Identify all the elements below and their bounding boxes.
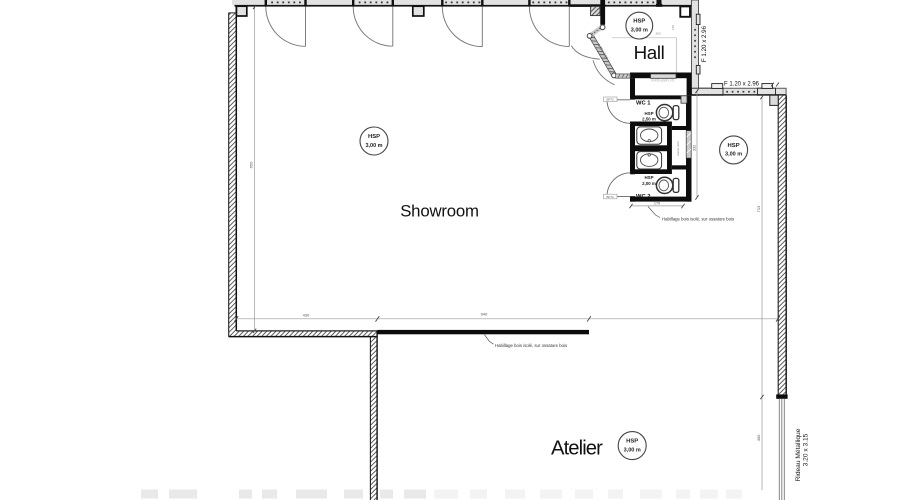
svg-text:HSP: HSP: [368, 134, 380, 140]
svg-text:F 1.20 x 2.96: F 1.20 x 2.96: [724, 81, 760, 87]
svg-text:940: 940: [481, 311, 488, 316]
svg-text:3,00 m: 3,00 m: [365, 143, 382, 149]
svg-text:Rideau Métallique: Rideau Métallique: [795, 428, 802, 481]
svg-text:400: 400: [756, 434, 761, 441]
svg-text:Atelier: Atelier: [551, 438, 603, 460]
svg-text:Habillage bois isolé, sur ossa: Habillage bois isolé, sur ossature bois: [662, 216, 734, 221]
svg-text:F 1.20 x 2.96: F 1.20 x 2.96: [701, 25, 708, 62]
svg-text:WC 1: WC 1: [636, 101, 651, 107]
svg-text:260: 260: [656, 32, 661, 36]
svg-text:WC 2: WC 2: [636, 194, 651, 200]
svg-text:179: 179: [654, 201, 660, 205]
svg-text:713: 713: [756, 205, 761, 212]
svg-text:BP72: BP72: [607, 195, 615, 199]
svg-text:HSP: HSP: [626, 439, 638, 445]
svg-text:HSP: HSP: [728, 143, 740, 149]
svg-text:Hall: Hall: [634, 42, 665, 63]
svg-text:3,00 m: 3,00 m: [631, 28, 648, 34]
svg-text:3,00 m: 3,00 m: [624, 447, 641, 453]
svg-text:430: 430: [303, 313, 310, 318]
svg-text:3,00 m: 3,00 m: [725, 152, 742, 158]
svg-text:BP72: BP72: [607, 98, 615, 102]
svg-text:HSP: HSP: [644, 111, 653, 116]
svg-text:PORTE ACIER 1 VTL: PORTE ACIER 1 VTL: [651, 79, 675, 82]
svg-text:160: 160: [671, 25, 675, 30]
svg-text:HSP: HSP: [633, 19, 645, 25]
svg-text:Showroom: Showroom: [400, 202, 479, 221]
svg-text:3.20 x 3.15: 3.20 x 3.15: [803, 433, 810, 466]
svg-text:HSP: HSP: [644, 175, 653, 180]
svg-text:332: 332: [692, 145, 696, 151]
svg-text:Habillage bois isolé, sur ossa: Habillage bois isolé, sur ossature bois: [495, 343, 567, 348]
svg-text:650: 650: [248, 161, 253, 168]
svg-text:Gaine tech.: Gaine tech.: [676, 140, 680, 156]
svg-text:2,50 m: 2,50 m: [642, 117, 656, 122]
svg-text:2,00 m: 2,00 m: [642, 181, 656, 186]
